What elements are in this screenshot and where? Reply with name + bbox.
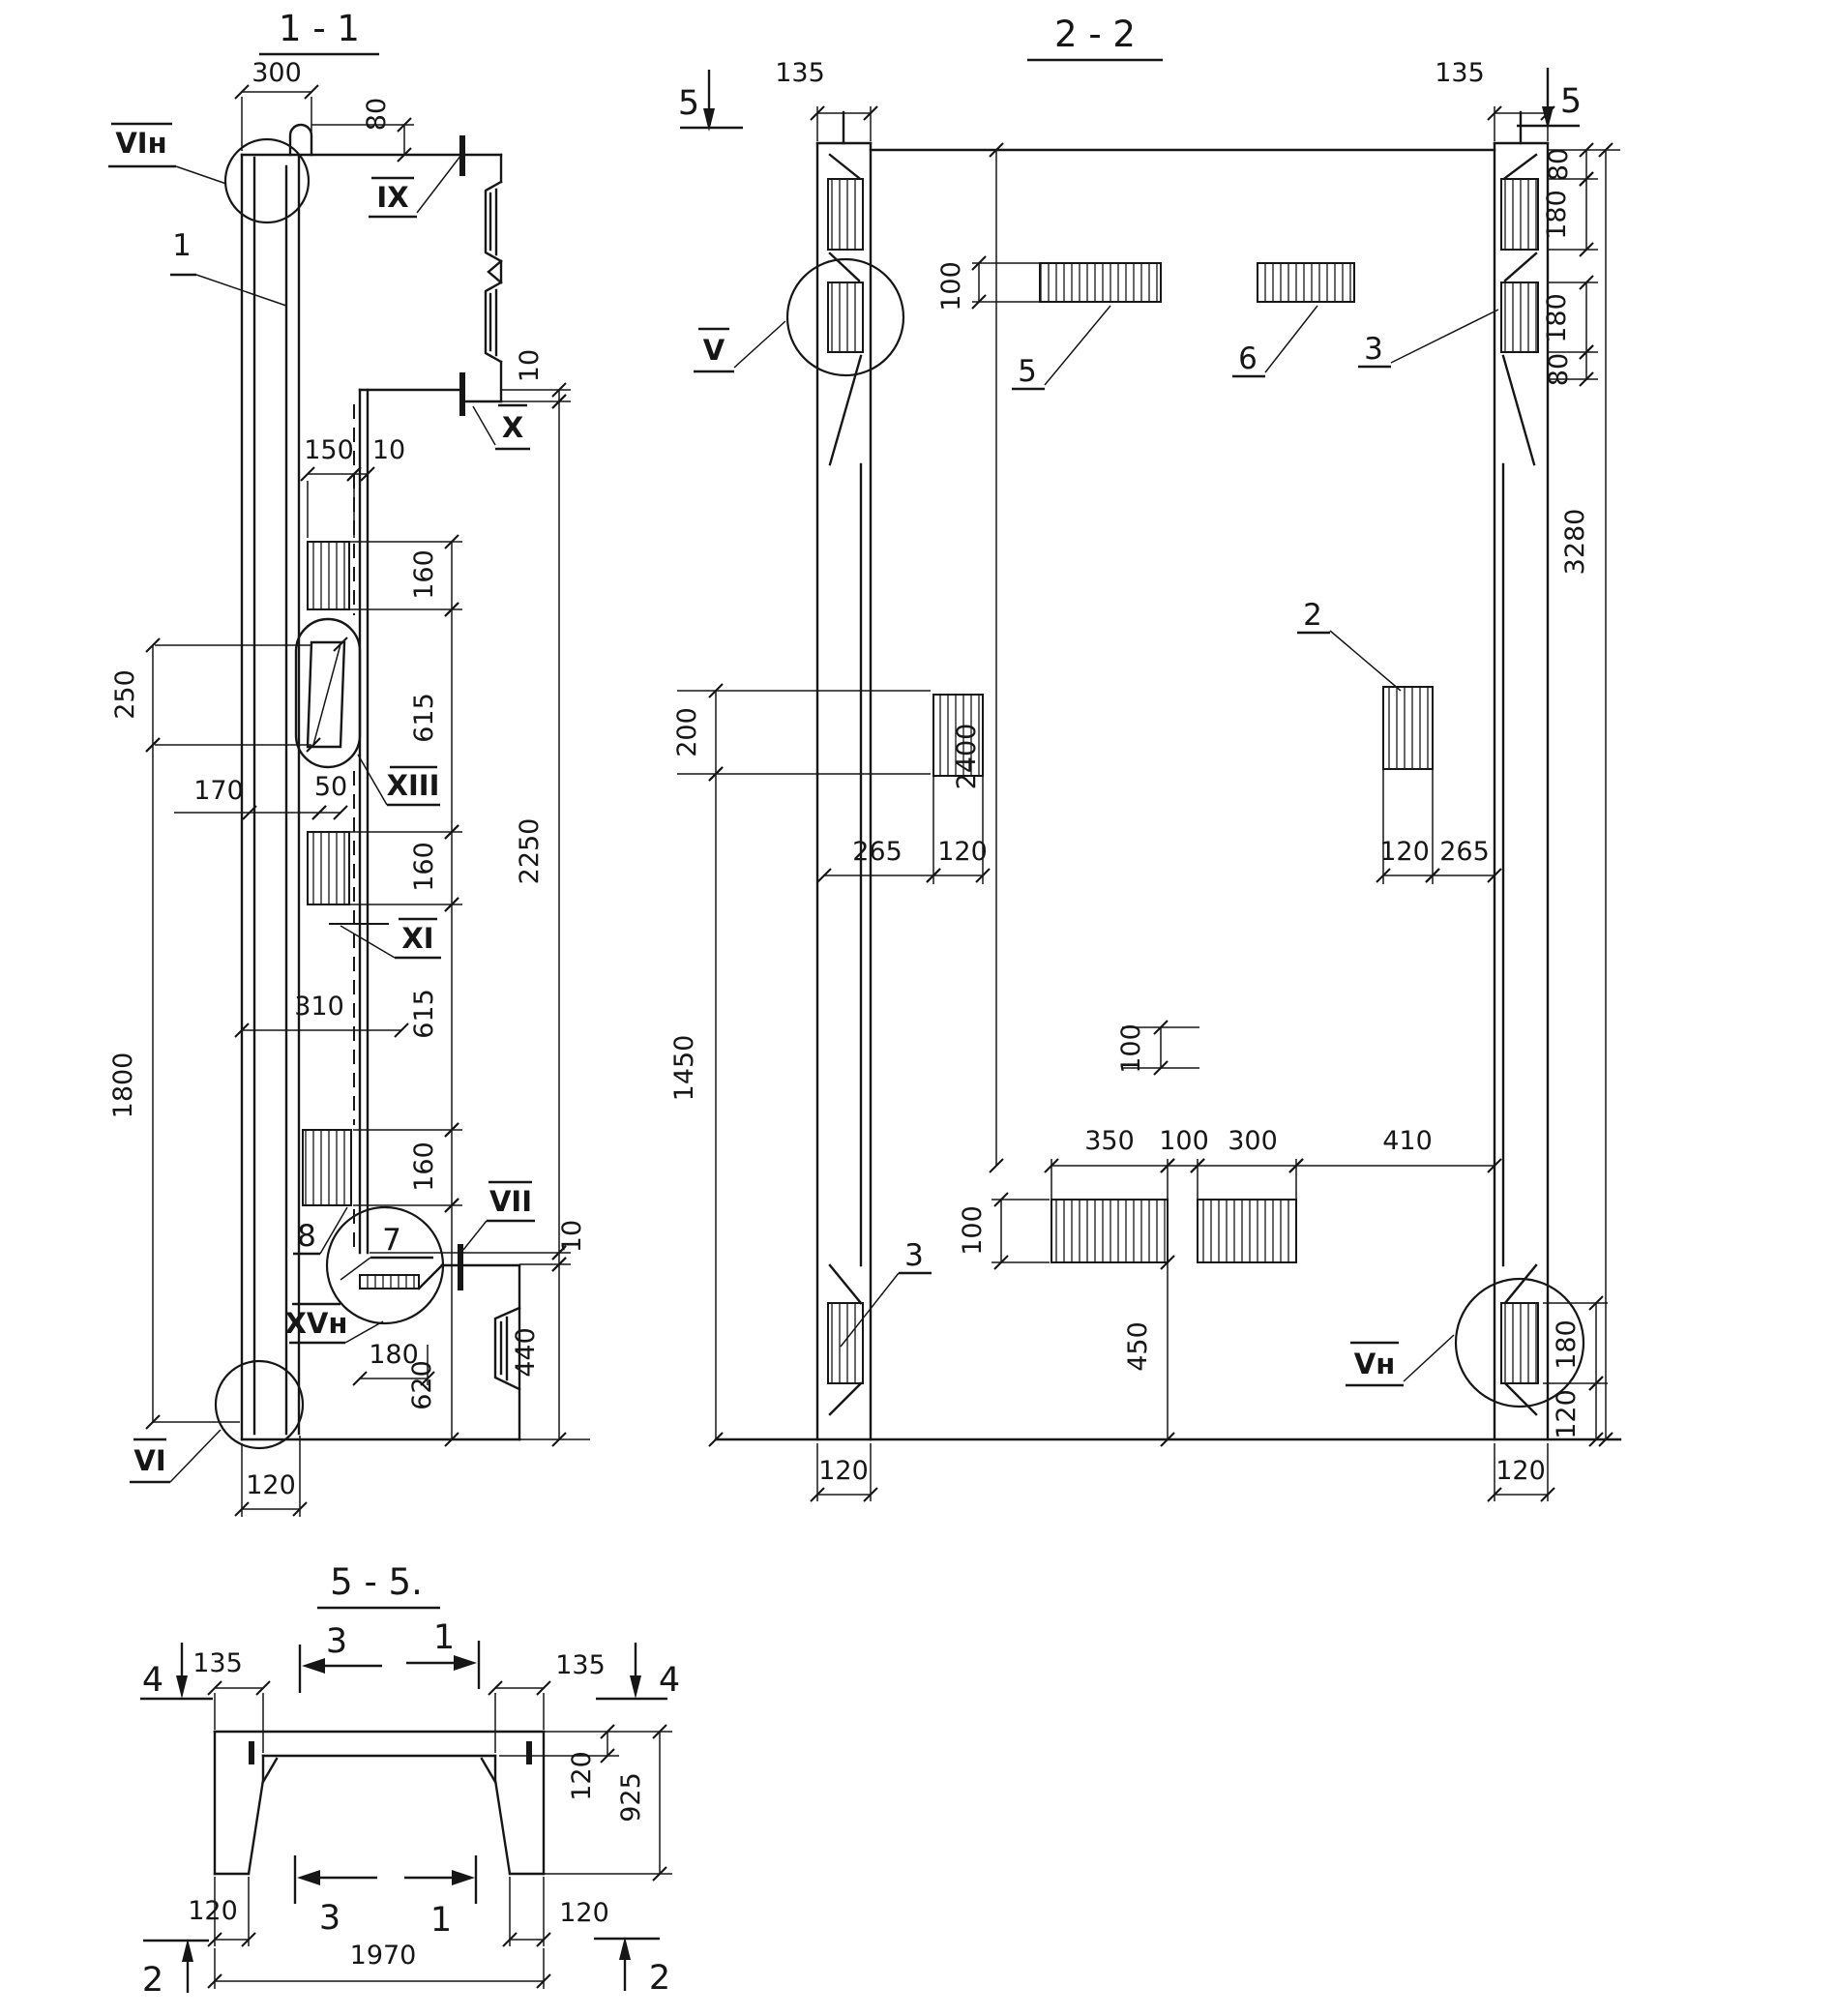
dim: 80 [1544, 148, 1574, 181]
arrow-mark [182, 1939, 193, 1962]
anchor-plate [828, 179, 863, 250]
node-label-vii: VII [489, 1185, 532, 1218]
dim: 10 [557, 1220, 587, 1253]
cut-marker-2-left: 2 [142, 1961, 163, 2000]
detail-circle-vi-top [225, 139, 309, 222]
dim: 200 [672, 707, 702, 757]
pos-label-3-left: 3 [904, 1238, 924, 1273]
dim: 80 [362, 98, 392, 131]
ln-mark [482, 1759, 495, 1782]
anchor-plate [308, 542, 349, 609]
ln-mark [1505, 253, 1536, 281]
dim: 120 [1495, 1456, 1546, 1486]
arrow-mark [176, 1675, 188, 1699]
dim: 120 [1552, 1389, 1582, 1439]
anchor-plate [1501, 179, 1538, 250]
ln-mark [1505, 1265, 1536, 1303]
leader-mark [417, 155, 461, 213]
dim: 120 [818, 1456, 869, 1486]
dim: 120 [1379, 837, 1430, 867]
anchor-plate-5 [1040, 263, 1161, 302]
ln-mark [1505, 1383, 1536, 1414]
dim: 180 [369, 1340, 419, 1370]
drawing-canvas: 1 - 1 [0, 0, 1835, 2016]
arrow-mark [619, 1937, 631, 1960]
dim: 1800 [108, 1052, 138, 1119]
dim: 410 [1382, 1126, 1433, 1156]
arrow-mark [302, 1658, 325, 1674]
cut-marker-3-top: 3 [326, 1622, 347, 1661]
pos-label-5: 5 [1018, 354, 1037, 389]
dim: 80 [1544, 353, 1574, 386]
pos-label-1: 1 [172, 228, 192, 263]
dim: 350 [1084, 1126, 1135, 1156]
dim: 310 [294, 992, 344, 1022]
cut-marker-1-top: 1 [433, 1618, 455, 1657]
anchor-plate [303, 1130, 351, 1205]
dim-mark [313, 644, 340, 745]
node-label-xiii: XIII [387, 769, 440, 802]
leader-mark [734, 321, 785, 368]
leader-mark [358, 755, 387, 805]
dim: 180 [1552, 1319, 1582, 1370]
section-1-1-title: 1 - 1 [279, 8, 360, 49]
cut-marker-1-bottom: 1 [430, 1901, 452, 1940]
anchor-plate-6 [1258, 263, 1354, 302]
leader-mark [1330, 631, 1401, 691]
section-5-5-outline [215, 1732, 544, 1874]
section-1-1-outline [242, 125, 519, 1439]
dim: 170 [193, 776, 244, 806]
arrow-mark [452, 1870, 475, 1885]
section-2-2-anchor-plates [828, 179, 1538, 1383]
section-1-1-dimensions: 300 80 10 2250 10 440 250 1800 170 50 15… [108, 58, 590, 1517]
node-label-vi-top: VIн [115, 127, 166, 160]
section-5-5: 5 - 5. 135 135 120 925 120 [140, 1561, 680, 2000]
cut-marker-4-right: 4 [659, 1661, 680, 1700]
section-5-5-title: 5 - 5. [330, 1561, 423, 1603]
pos-label-3-right: 3 [1364, 332, 1383, 367]
arrow-mark [630, 1675, 641, 1699]
dim: 300 [252, 58, 302, 88]
dim: 925 [616, 1772, 646, 1823]
leader-mark [320, 1207, 347, 1254]
dim: 10 [372, 435, 405, 465]
node-label-vn: Vн [1354, 1348, 1395, 1380]
cut-marker-3-bottom: 3 [319, 1899, 340, 1938]
node-label-ix: IX [376, 181, 408, 214]
dim: 250 [110, 669, 140, 720]
dim: 50 [314, 772, 347, 802]
notch-upper [486, 182, 501, 261]
leader-mark [1404, 1335, 1454, 1381]
dim: 100 [1116, 1023, 1146, 1074]
leader-mark [1045, 306, 1110, 385]
dim: 160 [409, 1141, 439, 1192]
dim: 120 [937, 837, 988, 867]
section-2-2-detail-circles [787, 259, 1583, 1407]
ln-mark [495, 1756, 510, 1874]
arrow-mark [297, 1870, 320, 1885]
section-1-1: 1 - 1 [108, 8, 590, 1517]
cut-marker-2-right: 2 [649, 1959, 670, 1998]
dim: 135 [1435, 58, 1485, 88]
ln-mark [830, 155, 859, 178]
ln-mark [488, 261, 501, 282]
anchor-plate [1051, 1200, 1168, 1262]
dim: 2400 [952, 724, 982, 790]
node-label-v: V [703, 334, 725, 367]
dim: 3280 [1560, 509, 1590, 576]
dim: 300 [1228, 1126, 1278, 1156]
dim: 440 [511, 1327, 541, 1378]
dim: 615 [409, 693, 439, 743]
dim: 180 [1542, 293, 1572, 343]
dim: 150 [304, 435, 354, 465]
dim: 160 [409, 549, 439, 600]
anchor-plate-2 [1383, 687, 1433, 769]
detail-circle-vi-bottom [216, 1361, 303, 1448]
anchor-plate [1501, 1303, 1538, 1383]
leader-mark [463, 1221, 487, 1250]
leader-mark [1265, 306, 1317, 372]
dim: 100 [958, 1205, 988, 1256]
section-1-1-node-labels: VIн 1 IX X XIII XI VII [108, 124, 535, 1482]
ln-mark [830, 253, 859, 281]
pos-label-7: 7 [382, 1223, 401, 1258]
cut-marker-5-left: 5 [678, 84, 699, 123]
pos-label-8: 8 [297, 1219, 316, 1254]
leader-mark [1391, 310, 1498, 363]
leader-mark [473, 406, 495, 445]
section-2-2-title: 2 - 2 [1054, 14, 1136, 55]
dim: 135 [192, 1648, 243, 1678]
dim: 160 [409, 842, 439, 892]
ln-mark [1503, 356, 1534, 464]
ln-mark [1505, 155, 1536, 178]
dim: 120 [188, 1896, 238, 1926]
dim: 100 [1159, 1126, 1209, 1156]
dim: 135 [555, 1650, 606, 1680]
ln-mark [830, 1383, 861, 1414]
pos-label-2: 2 [1303, 598, 1322, 633]
ln-mark [249, 1756, 263, 1874]
anchor-plate [828, 1303, 863, 1383]
ln-mark [830, 356, 861, 464]
dim: 265 [1439, 837, 1490, 867]
dim: 10 [515, 349, 545, 382]
anchor-plate [828, 282, 863, 352]
dim: 120 [246, 1470, 296, 1500]
dim: 450 [1123, 1321, 1153, 1372]
dim: 100 [936, 261, 966, 311]
dim: 1970 [350, 1941, 417, 1971]
node-label-xi: XI [401, 922, 433, 955]
dim: 120 [567, 1751, 597, 1801]
dim: 265 [852, 837, 903, 867]
dim: 615 [409, 989, 439, 1039]
leader-mark [170, 1430, 221, 1482]
blueprint-page: 1 - 1 [0, 0, 1835, 2016]
dim: 180 [1542, 190, 1572, 240]
node-label-xv: XVн [285, 1307, 348, 1340]
cut-marker-5-right: 5 [1560, 82, 1582, 121]
weld-plate [360, 1275, 419, 1289]
dim: 1450 [669, 1035, 699, 1102]
anchor-plate [1198, 1200, 1296, 1262]
ln-mark [263, 1759, 277, 1782]
dim: 135 [775, 58, 825, 88]
anchor-plate [1501, 282, 1538, 352]
node-label-vi: VI [133, 1444, 165, 1477]
notch-lower [486, 282, 501, 362]
dim: 2250 [515, 818, 545, 885]
arrow-mark [454, 1655, 477, 1671]
section-2-2: 2 - 2 [669, 14, 1620, 1501]
ln-mark [308, 642, 344, 747]
cut-marker-4-left: 4 [142, 1661, 163, 1700]
leader-mark [176, 166, 226, 184]
pos-label-6: 6 [1238, 341, 1258, 376]
dim: 120 [559, 1898, 609, 1928]
ln-mark [830, 1265, 861, 1303]
anchor-plate [308, 832, 349, 904]
node-label-x: X [502, 411, 523, 444]
lifting-loop [290, 125, 311, 155]
